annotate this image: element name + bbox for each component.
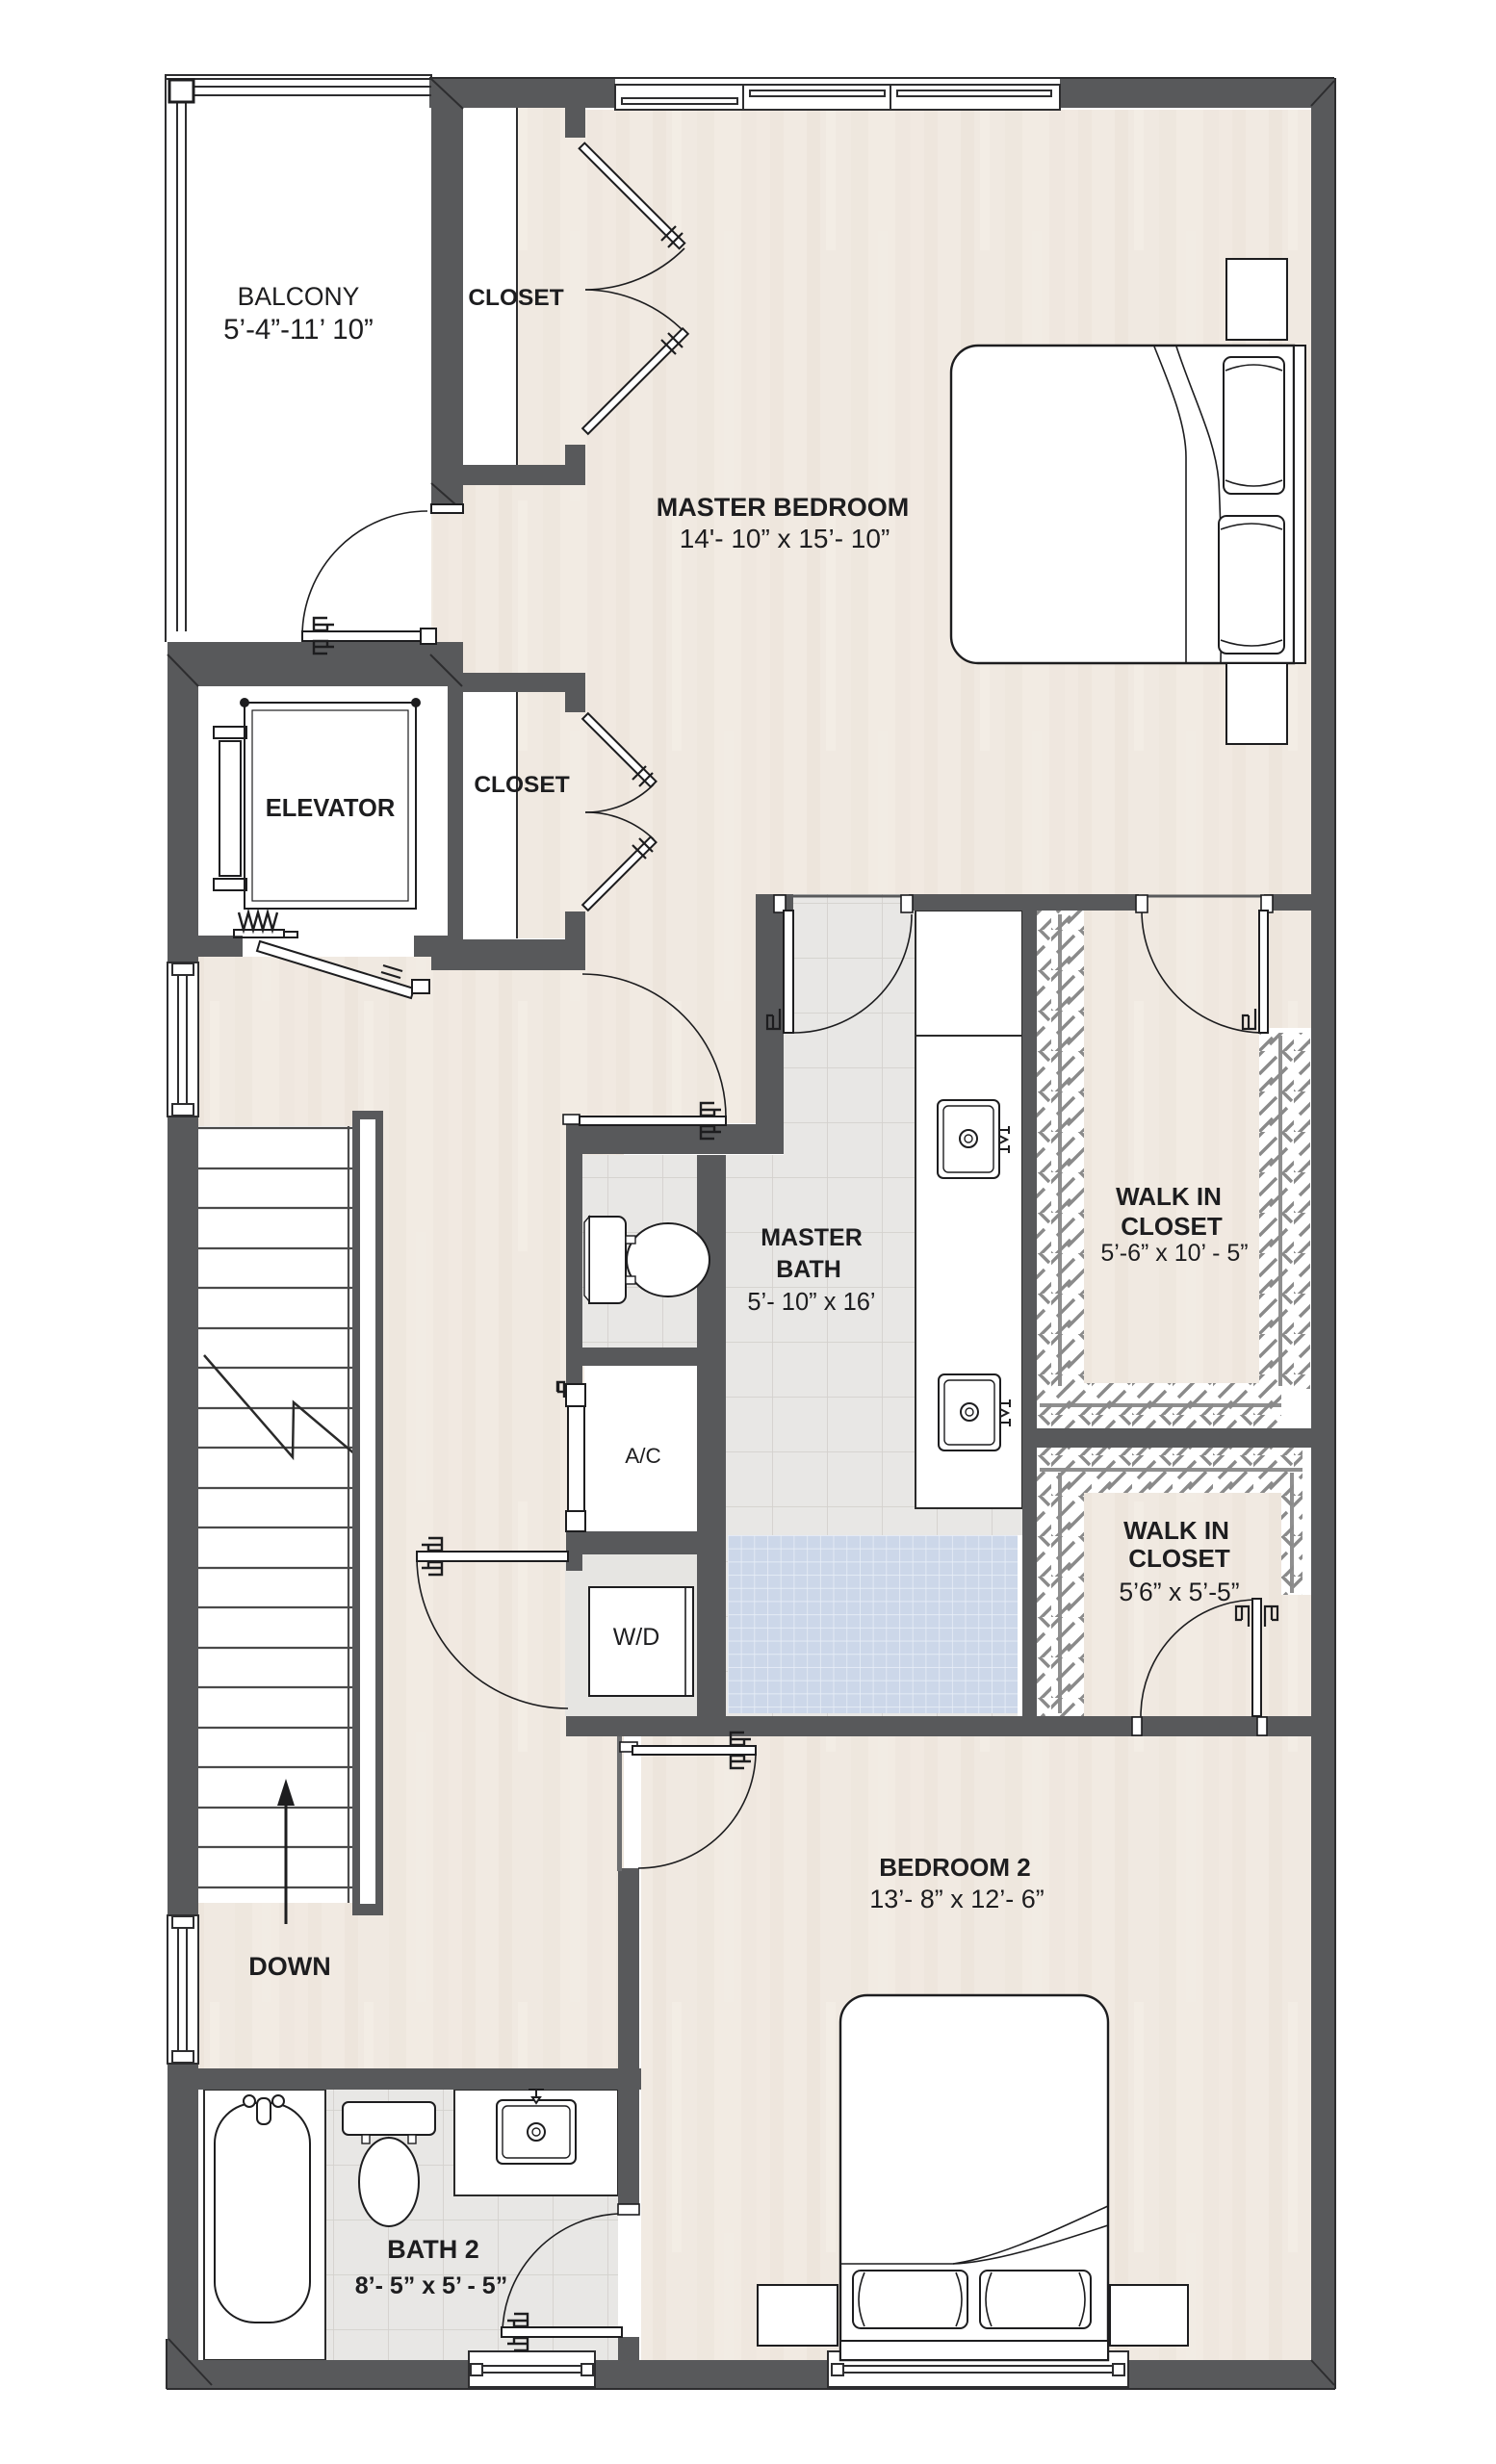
svg-text:A/C: A/C — [625, 1444, 661, 1468]
svg-text:BEDROOM 2: BEDROOM 2 — [879, 1853, 1030, 1882]
svg-text:BATH: BATH — [776, 1256, 841, 1283]
svg-text:BALCONY: BALCONY — [238, 282, 360, 311]
svg-text:ELEVATOR: ELEVATOR — [266, 795, 396, 822]
svg-text:DOWN: DOWN — [248, 1952, 330, 1981]
svg-text:W/D: W/D — [613, 1624, 660, 1651]
svg-text:CLOSET: CLOSET — [1121, 1212, 1223, 1241]
svg-text:BATH 2: BATH 2 — [387, 2235, 479, 2264]
svg-text:WALK IN: WALK IN — [1116, 1182, 1222, 1211]
svg-text:13’- 8” x 12’- 6”: 13’- 8” x 12’- 6” — [869, 1885, 1045, 1913]
svg-text:14'- 10” x 15’- 10”: 14'- 10” x 15’- 10” — [680, 524, 890, 553]
svg-text:MASTER: MASTER — [761, 1224, 863, 1251]
svg-text:5’- 10” x 16’: 5’- 10” x 16’ — [747, 1289, 875, 1316]
svg-text:WALK IN: WALK IN — [1123, 1516, 1229, 1545]
svg-text:8’- 5” x 5’ - 5”: 8’- 5” x 5’ - 5” — [355, 2272, 507, 2299]
svg-text:MASTER BEDROOM: MASTER BEDROOM — [657, 493, 910, 522]
svg-text:CLOSET: CLOSET — [1128, 1544, 1230, 1573]
svg-text:5’-4”-11’ 10”: 5’-4”-11’ 10” — [223, 314, 374, 346]
svg-text:5’6” x 5’-5”: 5’6” x 5’-5” — [1119, 1578, 1239, 1606]
svg-text:5’-6” x 10’ - 5”: 5’-6” x 10’ - 5” — [1100, 1240, 1248, 1267]
svg-text:CLOSET: CLOSET — [474, 772, 569, 798]
svg-text:CLOSET: CLOSET — [468, 285, 563, 311]
